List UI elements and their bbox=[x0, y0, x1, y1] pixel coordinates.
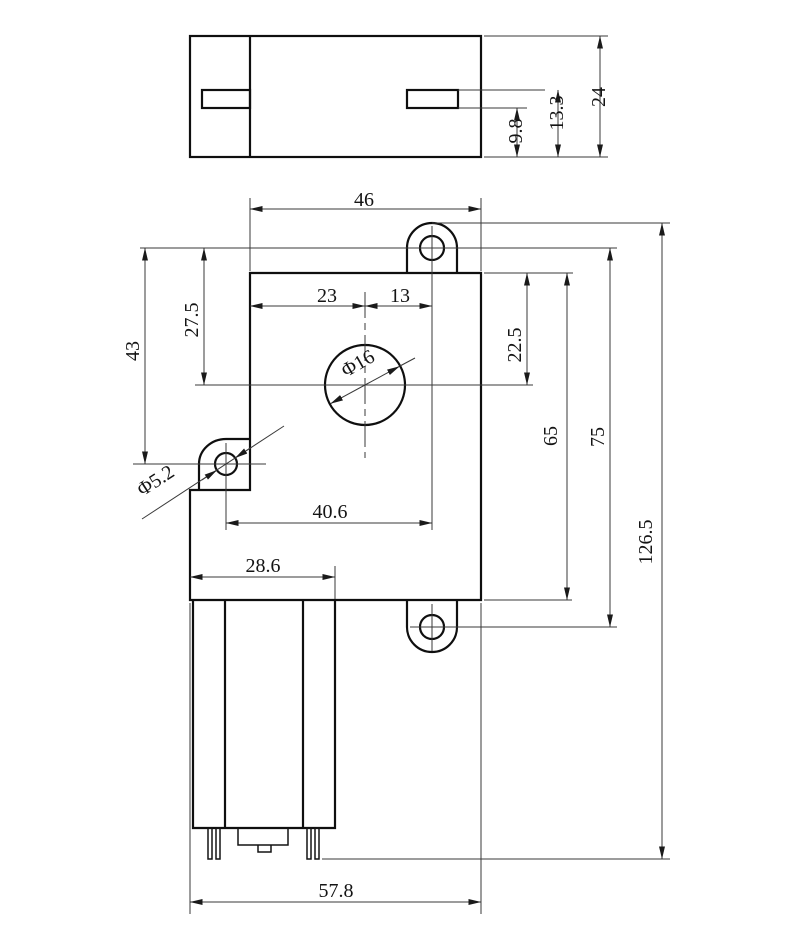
dim-label-22-5: 22.5 bbox=[504, 328, 526, 363]
dim-label-mount-hole-dia: Φ5.2 bbox=[133, 461, 178, 501]
motor-terminal-pin bbox=[208, 828, 212, 859]
dim-label-65: 65 bbox=[540, 426, 562, 446]
dim-label-13-3: 13.3 bbox=[546, 96, 568, 131]
dim-label-40-6: 40.6 bbox=[313, 501, 348, 523]
dim-label-23: 23 bbox=[317, 285, 337, 307]
top-view bbox=[190, 36, 481, 157]
motor-end-cap-boss bbox=[238, 828, 288, 845]
dim-label-9-8: 9.8 bbox=[505, 119, 527, 144]
motor-terminal-pin bbox=[307, 828, 311, 859]
leader-line-shaft-dia bbox=[400, 358, 415, 366]
motor-body bbox=[193, 600, 335, 859]
motor-terminal-pin bbox=[216, 828, 220, 859]
dim-label-24: 24 bbox=[588, 87, 610, 107]
dim-label-57-8: 57.8 bbox=[319, 880, 354, 902]
dimension-lines bbox=[145, 36, 662, 902]
drawing-canvas: 24 13.3 9.8 46 23 13 27.5 43 22.5 65 75 … bbox=[0, 0, 800, 950]
top-view-right-slot bbox=[407, 90, 458, 108]
dim-label-28-6: 28.6 bbox=[246, 555, 281, 577]
dim-label-126-5: 126.5 bbox=[635, 520, 657, 565]
top-view-left-slot bbox=[202, 90, 250, 108]
dia-arrow-shaft-lower bbox=[331, 385, 366, 404]
motor-can-outline bbox=[193, 600, 335, 828]
dia-arrow-mount-lower bbox=[202, 470, 217, 480]
extension-lines bbox=[133, 36, 670, 914]
dia-arrow-mount-upper bbox=[235, 448, 251, 458]
dim-label-27-5: 27.5 bbox=[181, 303, 203, 338]
motor-end-cap-tab bbox=[258, 845, 271, 852]
dim-label-46: 46 bbox=[354, 189, 374, 211]
motor-terminal-pin bbox=[315, 828, 319, 859]
engineering-drawing: 24 13.3 9.8 46 23 13 27.5 43 22.5 65 75 … bbox=[0, 0, 800, 950]
top-view-body-outline bbox=[190, 36, 481, 157]
dim-label-75: 75 bbox=[587, 427, 609, 447]
gearbox-plate-outline bbox=[190, 273, 481, 600]
dim-label-43: 43 bbox=[122, 341, 144, 361]
dim-label-13: 13 bbox=[390, 285, 410, 307]
